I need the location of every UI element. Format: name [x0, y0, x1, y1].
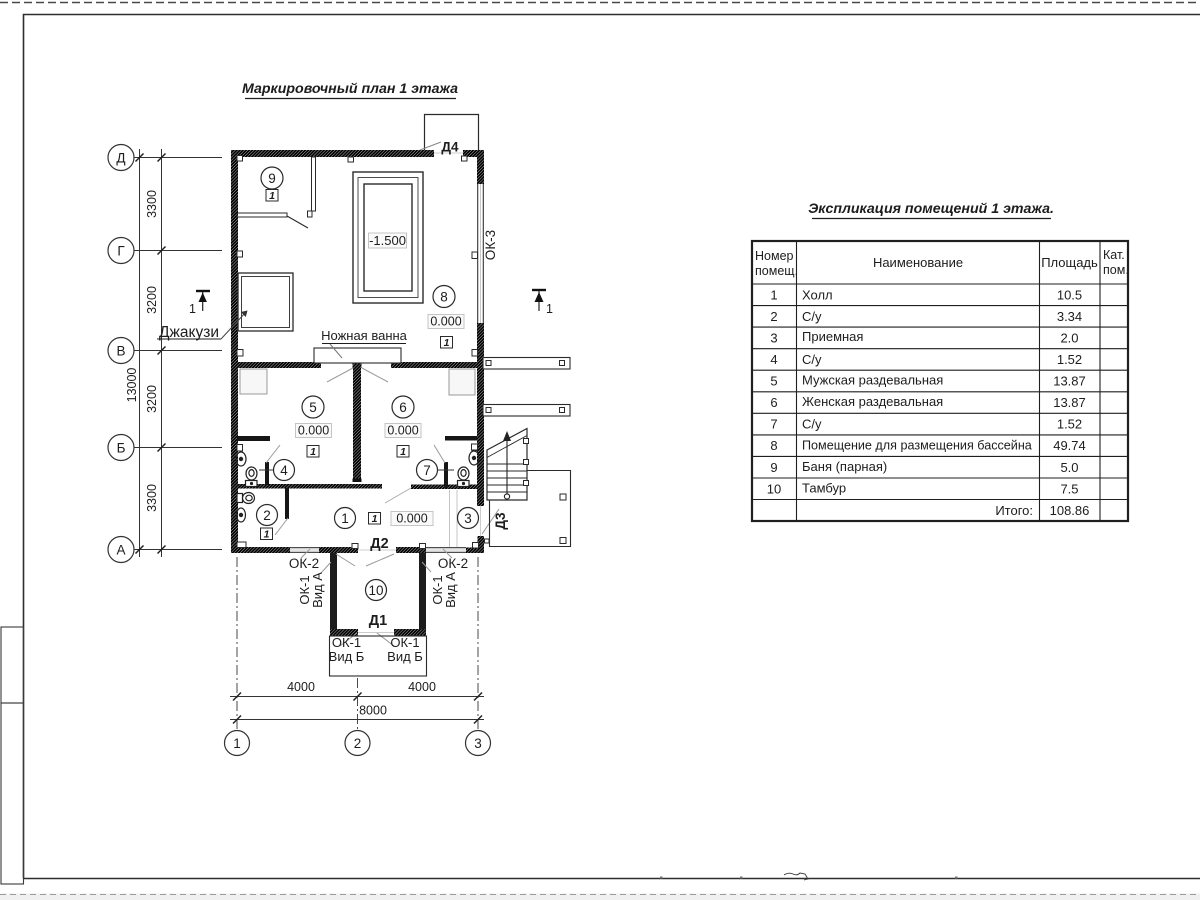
svg-text:3: 3 — [770, 331, 777, 346]
svg-text:2: 2 — [354, 736, 362, 751]
svg-text:Площадь: Площадь — [1041, 255, 1098, 270]
svg-text:С/у: С/у — [802, 352, 822, 367]
svg-text:Итого:: Итого: — [995, 503, 1033, 518]
svg-text:Вид А: Вид А — [443, 572, 458, 608]
svg-text:7.5: 7.5 — [1060, 481, 1078, 496]
svg-text:Ножная ванна: Ножная ванна — [321, 328, 408, 343]
svg-text:3: 3 — [464, 511, 472, 526]
svg-text:Вид Б: Вид Б — [387, 649, 423, 664]
svg-text:В: В — [116, 344, 125, 359]
svg-text:Г: Г — [117, 244, 125, 259]
svg-text:3200: 3200 — [145, 286, 159, 314]
svg-text:1: 1 — [341, 511, 349, 526]
svg-text:2: 2 — [263, 508, 271, 523]
svg-text:А: А — [116, 543, 125, 558]
svg-text:3200: 3200 — [145, 385, 159, 413]
svg-text:Тамбур: Тамбур — [802, 481, 846, 496]
svg-text:2.0: 2.0 — [1060, 331, 1078, 346]
svg-text:-1.500: -1.500 — [369, 233, 406, 248]
svg-text:4000: 4000 — [408, 680, 436, 694]
svg-text:5: 5 — [770, 374, 777, 389]
svg-text:Баня (парная): Баня (парная) — [802, 459, 887, 474]
svg-text:С/у: С/у — [802, 309, 822, 324]
svg-text:Кат.: Кат. — [1103, 248, 1125, 262]
svg-text:49.74: 49.74 — [1053, 438, 1086, 453]
svg-text:5.0: 5.0 — [1060, 460, 1078, 475]
svg-text:Помещение для размещения бассе: Помещение для размещения бассейна — [802, 439, 1032, 453]
svg-text:3300: 3300 — [145, 190, 159, 218]
svg-text:Д: Д — [116, 151, 125, 166]
svg-text:4: 4 — [280, 463, 288, 478]
svg-text:1: 1 — [444, 337, 450, 349]
svg-text:10.5: 10.5 — [1057, 287, 1082, 302]
svg-text:4: 4 — [770, 352, 777, 367]
svg-text:1: 1 — [269, 190, 275, 202]
svg-text:108.86: 108.86 — [1050, 503, 1090, 518]
svg-text:1: 1 — [264, 529, 270, 541]
svg-text:13.87: 13.87 — [1053, 395, 1086, 410]
svg-text:1: 1 — [770, 287, 777, 302]
svg-text:0.000: 0.000 — [298, 424, 329, 438]
svg-text:10: 10 — [767, 481, 781, 496]
svg-text:Д3: Д3 — [493, 512, 508, 530]
svg-text:Номер: Номер — [755, 249, 794, 263]
svg-text:7: 7 — [423, 463, 431, 478]
svg-text:Б: Б — [117, 441, 126, 456]
svg-text:Холл: Холл — [802, 287, 833, 302]
svg-text:ОК-2: ОК-2 — [438, 556, 468, 571]
svg-text:1.52: 1.52 — [1057, 352, 1082, 367]
svg-text:Мужская раздевальная: Мужская раздевальная — [802, 373, 943, 388]
svg-text:0.000: 0.000 — [396, 512, 427, 526]
svg-text:8: 8 — [770, 438, 777, 453]
svg-text:Д1: Д1 — [369, 613, 387, 629]
svg-text:Д4: Д4 — [441, 140, 459, 155]
svg-text:4000: 4000 — [287, 680, 315, 694]
svg-text:10: 10 — [368, 583, 383, 598]
svg-text:8: 8 — [440, 290, 448, 305]
svg-text:Наименование: Наименование — [873, 255, 963, 270]
svg-text:9: 9 — [770, 460, 777, 475]
svg-text:пом.: пом. — [1103, 263, 1129, 277]
svg-text:6: 6 — [770, 395, 777, 410]
svg-text:1: 1 — [233, 736, 241, 751]
svg-text:1.52: 1.52 — [1057, 417, 1082, 432]
svg-text:13000: 13000 — [125, 368, 139, 403]
svg-text:Приемная: Приемная — [802, 329, 863, 344]
svg-text:1: 1 — [546, 302, 553, 316]
svg-text:Вид А: Вид А — [310, 572, 325, 608]
svg-text:помещ.: помещ. — [755, 264, 798, 278]
svg-text:3.34: 3.34 — [1057, 309, 1082, 324]
svg-text:6: 6 — [399, 400, 407, 415]
svg-text:Маркировочный план 1 этажа: Маркировочный план 1 этажа — [242, 81, 458, 97]
svg-text:0.000: 0.000 — [430, 315, 461, 329]
svg-text:Экспликация помещений 1 этажа.: Экспликация помещений 1 этажа. — [808, 201, 1054, 217]
svg-text:3: 3 — [474, 736, 482, 751]
svg-text:2: 2 — [770, 309, 777, 324]
svg-text:С/у: С/у — [802, 417, 822, 432]
svg-text:7: 7 — [770, 417, 777, 432]
svg-text:8000: 8000 — [359, 704, 387, 718]
svg-text:1: 1 — [400, 446, 406, 458]
svg-text:9: 9 — [268, 171, 276, 186]
svg-text:ОК-1: ОК-1 — [332, 635, 361, 650]
svg-text:ОК-3: ОК-3 — [483, 230, 498, 260]
svg-text:5: 5 — [309, 400, 317, 415]
svg-text:3300: 3300 — [145, 484, 159, 512]
svg-text:ОК-2: ОК-2 — [289, 556, 319, 571]
svg-text:Женская раздевальная: Женская раздевальная — [802, 394, 943, 409]
svg-text:Вид Б: Вид Б — [329, 649, 365, 664]
svg-text:13.87: 13.87 — [1053, 374, 1086, 389]
svg-text:ОК-1: ОК-1 — [390, 635, 419, 650]
svg-text:0.000: 0.000 — [387, 424, 418, 438]
svg-text:1: 1 — [310, 446, 316, 458]
svg-text:1: 1 — [189, 302, 196, 316]
svg-text:1: 1 — [372, 513, 378, 525]
svg-text:Д2: Д2 — [370, 536, 388, 552]
